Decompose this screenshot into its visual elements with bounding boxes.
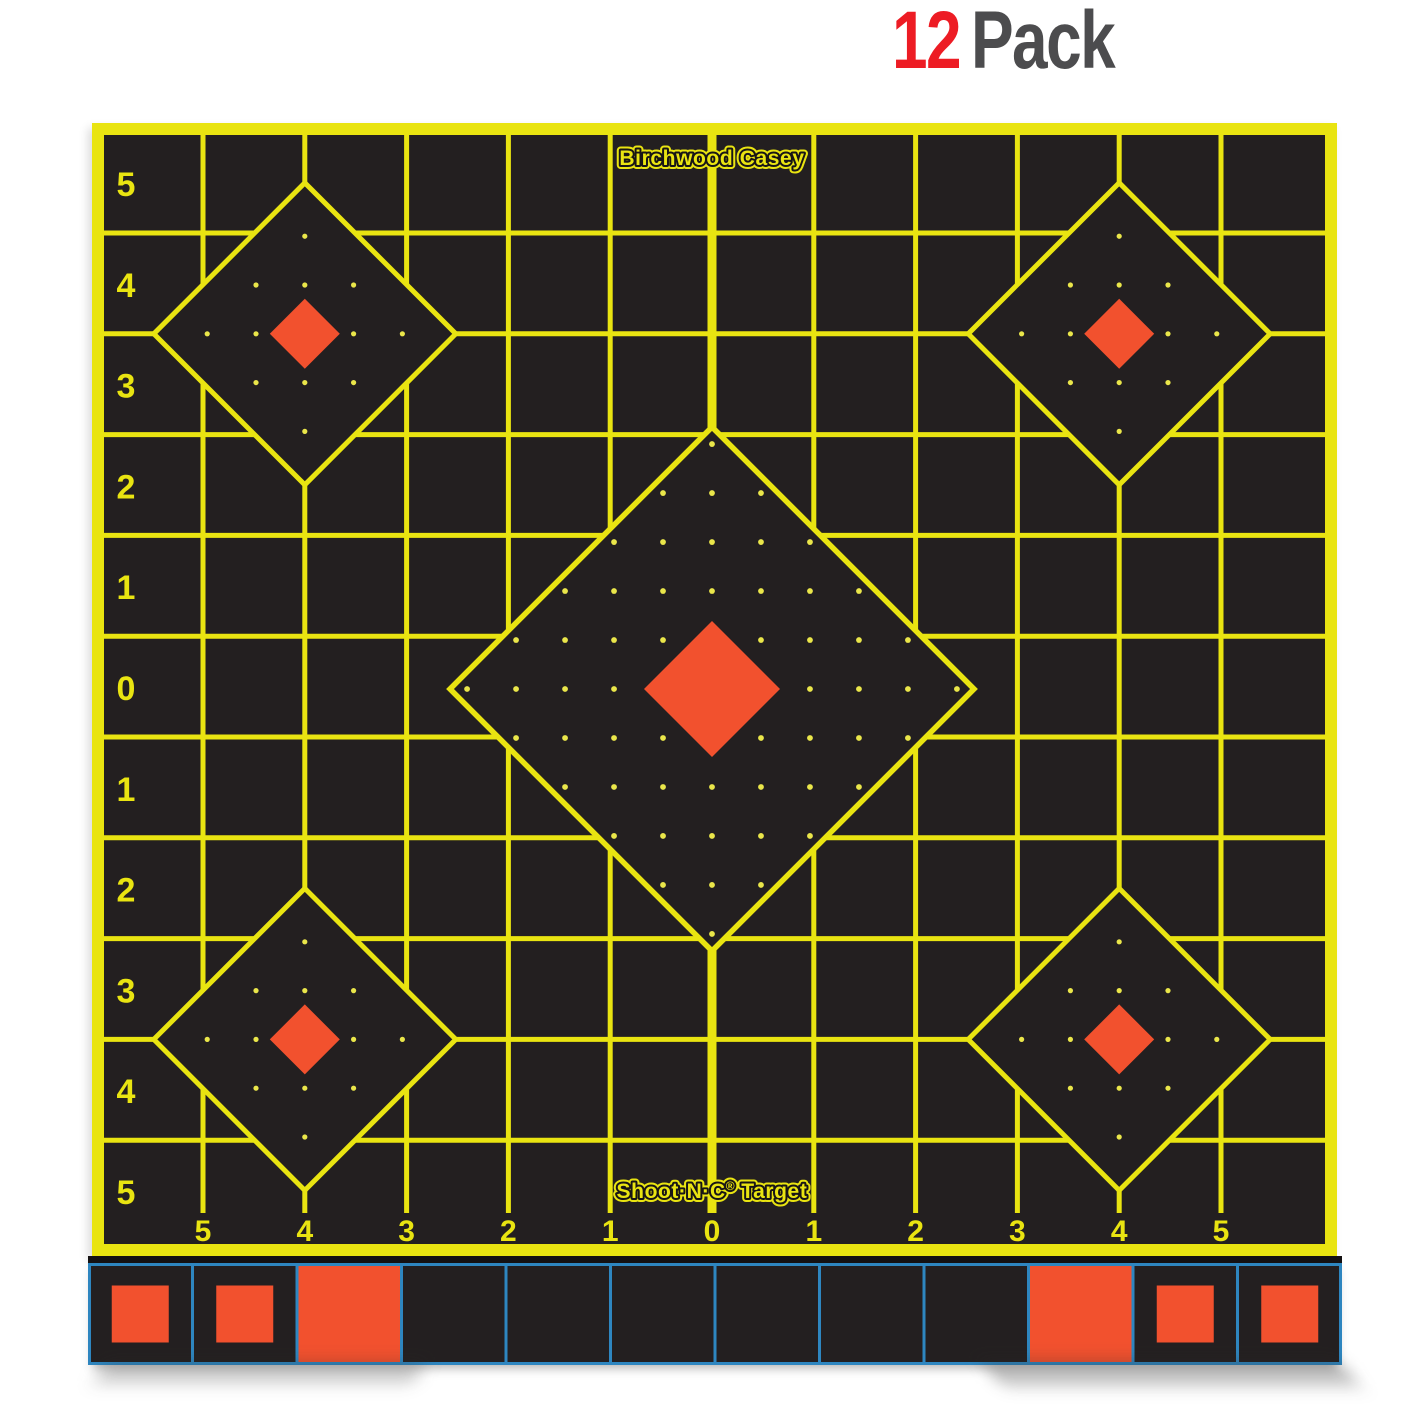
- paster-square: [112, 1286, 169, 1343]
- aim-dot: [351, 1086, 356, 1091]
- aim-dot: [513, 735, 519, 741]
- aim-dot: [562, 588, 568, 594]
- aim-dot: [660, 833, 666, 839]
- pack-count: 12: [892, 0, 960, 86]
- aim-dot: [400, 331, 405, 336]
- axis-label-left: 0: [117, 670, 136, 708]
- aim-dot: [807, 686, 813, 692]
- drop-shadow-left: [97, 1363, 424, 1381]
- axis-label-left: 1: [117, 569, 136, 607]
- target-sheet: 5432101234554321012345 Birchwood Casey B…: [92, 123, 1337, 1256]
- aim-dot: [905, 637, 911, 643]
- pack-count-label: Pack: [971, 0, 1114, 86]
- aim-dot: [1165, 1086, 1170, 1091]
- axis-label-bottom: 4: [1111, 1215, 1128, 1248]
- aim-dot: [562, 637, 568, 643]
- aim-dot: [905, 735, 911, 741]
- aim-dot: [1165, 380, 1170, 385]
- aim-dot: [611, 784, 617, 790]
- aim-dot: [611, 686, 617, 692]
- aim-dot: [807, 588, 813, 594]
- aim-dot: [1117, 282, 1122, 287]
- axis-label-left: 1: [117, 771, 136, 809]
- aim-dot: [400, 1037, 405, 1042]
- aim-dot: [1117, 1134, 1122, 1139]
- axis-label-left: 5: [117, 166, 136, 204]
- paster-square: [1261, 1286, 1318, 1343]
- aim-dot: [253, 282, 258, 287]
- aim-dot: [1117, 1086, 1122, 1091]
- axis-label-left: 3: [117, 368, 136, 406]
- axis-label-bottom: 1: [805, 1215, 822, 1248]
- aim-dot: [562, 735, 568, 741]
- axis-label-bottom: 1: [602, 1215, 619, 1248]
- axis-label-bottom: 4: [296, 1215, 313, 1248]
- product-suffix: Target: [741, 1180, 807, 1203]
- aim-dot: [1068, 1037, 1073, 1042]
- aim-dot: [1068, 380, 1073, 385]
- aim-dot: [513, 637, 519, 643]
- aim-dot: [758, 784, 764, 790]
- aim-dot: [253, 1037, 258, 1042]
- aim-dot: [302, 1086, 307, 1091]
- aim-dot: [611, 539, 617, 545]
- axis-label-left: 4: [117, 1073, 136, 1111]
- aim-dot: [302, 988, 307, 993]
- aim-dot: [758, 490, 764, 496]
- aim-dot: [807, 539, 813, 545]
- aim-dot: [351, 331, 356, 336]
- paster-square: [1157, 1286, 1214, 1343]
- aim-dot: [253, 331, 258, 336]
- aim-dot: [1165, 1037, 1170, 1042]
- aim-dot: [302, 380, 307, 385]
- aim-dot: [709, 441, 715, 447]
- aim-dot: [1117, 939, 1122, 944]
- aim-dot: [954, 686, 960, 692]
- aim-dot: [758, 637, 764, 643]
- axis-label-left: 5: [117, 1174, 136, 1212]
- aim-dot: [1165, 988, 1170, 993]
- axis-label-bottom: 3: [1009, 1215, 1026, 1248]
- paster-strip: [88, 1256, 1342, 1365]
- paster-square: [216, 1286, 273, 1343]
- aim-dot: [1165, 331, 1170, 336]
- aim-dot: [660, 539, 666, 545]
- aim-dot: [513, 686, 519, 692]
- aim-dot: [1068, 988, 1073, 993]
- aim-dot: [758, 539, 764, 545]
- axis-label-left: 4: [117, 267, 136, 305]
- registered-mark: ®: [726, 1179, 735, 1193]
- aim-dot: [464, 686, 470, 692]
- aim-dot: [1117, 234, 1122, 239]
- aim-dot: [253, 380, 258, 385]
- axis-label-bottom: 5: [1213, 1215, 1230, 1248]
- aim-dot: [709, 784, 715, 790]
- aim-dot: [253, 988, 258, 993]
- axis-label-left: 2: [117, 872, 136, 910]
- aim-dot: [302, 939, 307, 944]
- aim-dot: [1165, 282, 1170, 287]
- aim-dot: [807, 735, 813, 741]
- aim-dot: [1214, 1037, 1219, 1042]
- product-logo: Shoot·N·C®Target: [617, 1179, 808, 1203]
- axis-label-left: 2: [117, 468, 136, 506]
- aim-dot: [856, 637, 862, 643]
- axis-label-bottom: 5: [195, 1215, 212, 1248]
- aim-dot: [660, 784, 666, 790]
- aim-dot: [709, 833, 715, 839]
- paster-cell-full: [1029, 1263, 1134, 1365]
- aim-dot: [1019, 1037, 1024, 1042]
- aim-dot: [351, 988, 356, 993]
- aim-dot: [351, 1037, 356, 1042]
- aim-dot: [302, 429, 307, 434]
- aim-dot: [856, 735, 862, 741]
- aim-dot: [807, 637, 813, 643]
- aim-dot: [562, 686, 568, 692]
- aim-dot: [611, 637, 617, 643]
- aim-dot: [1068, 282, 1073, 287]
- aim-dot: [905, 686, 911, 692]
- aim-dot: [1117, 380, 1122, 385]
- aim-dot: [205, 1037, 210, 1042]
- aim-dot: [807, 784, 813, 790]
- aim-dot: [856, 686, 862, 692]
- axis-label-bottom: 0: [704, 1215, 721, 1248]
- aim-dot: [562, 784, 568, 790]
- aim-dot: [205, 331, 210, 336]
- aim-dot: [351, 380, 356, 385]
- aim-dot: [660, 637, 666, 643]
- aim-dot: [856, 784, 862, 790]
- aim-dot: [1068, 331, 1073, 336]
- aim-dot: [351, 282, 356, 287]
- axis-label-bottom: 2: [907, 1215, 924, 1248]
- aim-dot: [1117, 988, 1122, 993]
- drop-shadow-right: [983, 1362, 1357, 1384]
- aim-dot: [611, 735, 617, 741]
- aim-dot: [1214, 331, 1219, 336]
- aim-dot: [758, 833, 764, 839]
- aim-dot: [709, 588, 715, 594]
- aim-dot: [253, 1086, 258, 1091]
- aim-dot: [709, 882, 715, 888]
- aim-dot: [856, 588, 862, 594]
- axis-label-left: 3: [117, 972, 136, 1010]
- axis-label-bottom: 3: [398, 1215, 415, 1248]
- axis-label-bottom: 2: [500, 1215, 517, 1248]
- aim-dot: [1019, 331, 1024, 336]
- brand-logo: Birchwood Casey: [619, 147, 804, 170]
- aim-dot: [1068, 1086, 1073, 1091]
- aim-dot: [709, 490, 715, 496]
- aim-dot: [709, 539, 715, 545]
- aim-dot: [302, 1134, 307, 1139]
- aim-dot: [758, 882, 764, 888]
- aim-dot: [660, 735, 666, 741]
- aim-dot: [660, 588, 666, 594]
- aim-dot: [1117, 429, 1122, 434]
- aim-dot: [302, 282, 307, 287]
- aim-dot: [611, 588, 617, 594]
- aim-dot: [660, 882, 666, 888]
- aim-dot: [758, 735, 764, 741]
- paster-cell-full: [297, 1263, 402, 1365]
- aim-dot: [709, 931, 715, 937]
- pack-count-badge: 12Pack: [892, 0, 1114, 82]
- aim-dot: [302, 234, 307, 239]
- product-name: Shoot·N·C: [617, 1180, 726, 1203]
- aim-dot: [758, 588, 764, 594]
- aim-dot: [611, 833, 617, 839]
- aim-dot: [807, 833, 813, 839]
- product-image: 12Pack 5432101234554321012345 Birchwood …: [0, 0, 1422, 1422]
- aim-dot: [660, 490, 666, 496]
- paster-strip-layer: [88, 1256, 1342, 1365]
